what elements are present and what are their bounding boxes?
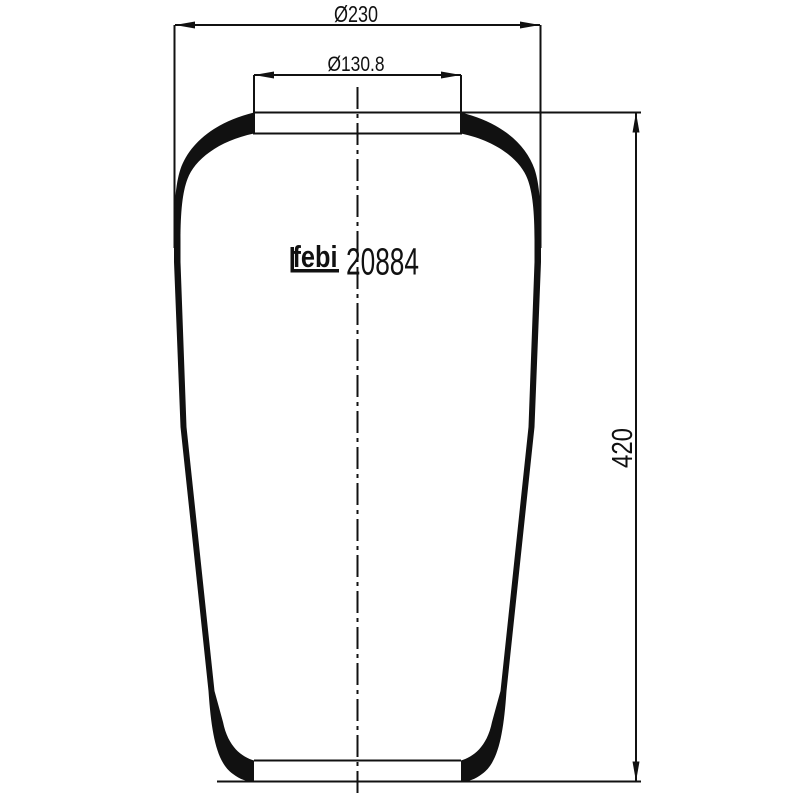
dim-outer-diameter-label: Ø230 <box>334 1 378 27</box>
dim-height-line <box>217 113 641 782</box>
dim-height-arrow-top <box>633 113 640 133</box>
technical-drawing-page: Ø230 Ø130.8 420 febi <box>0 0 800 800</box>
dim-neck-diameter-arrow-right <box>441 72 461 79</box>
dim-outer-diameter-arrow-left <box>175 22 195 29</box>
part-number: 20884 <box>346 242 419 284</box>
dim-height-label: 420 <box>607 428 639 468</box>
bellows-wall-right <box>461 113 541 783</box>
air-spring-technical-drawing: Ø230 Ø130.8 420 febi <box>0 0 800 800</box>
brand-block: febi 20884 <box>291 239 420 284</box>
febi-logo-text: febi <box>293 239 338 274</box>
dim-height: 420 <box>217 113 641 782</box>
dim-height-arrow-bottom <box>633 762 640 782</box>
bellows-wall-left <box>174 113 254 783</box>
dim-outer-diameter-arrow-right <box>520 22 540 29</box>
dim-neck-diameter-label: Ø130.8 <box>328 53 385 76</box>
dim-neck-diameter-arrow-left <box>254 72 274 79</box>
